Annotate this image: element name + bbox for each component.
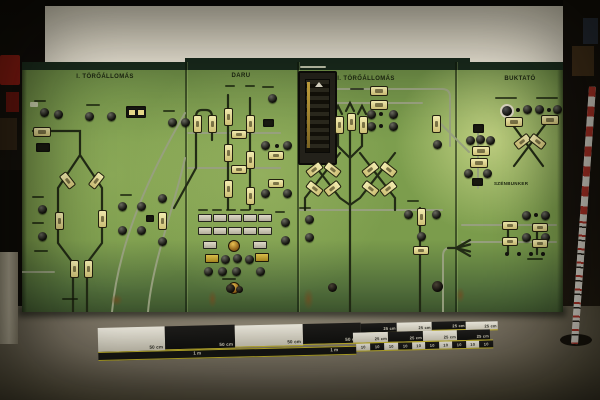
panel-title-2: DARU: [216, 73, 266, 80]
indicator-lamp: [33, 127, 51, 137]
push-button: [107, 112, 116, 121]
recorder-pointer: [315, 82, 323, 87]
label-smudge: [34, 250, 48, 252]
indicator-lamp: [84, 260, 93, 278]
dark-indicator-box: [36, 143, 50, 152]
push-button: [433, 140, 442, 149]
push-button: [476, 135, 485, 144]
signal-dot: [505, 252, 509, 256]
label-smudge: [198, 209, 208, 211]
push-button: [118, 226, 127, 235]
door-knob: [432, 281, 443, 292]
push-button: [118, 202, 127, 211]
indicator-lamp: [541, 115, 559, 125]
signal-dot: [547, 108, 551, 112]
push-button: [218, 267, 227, 276]
red-crate-small: [6, 92, 19, 112]
indicator-lamp: [417, 208, 426, 226]
indicator-window: [228, 227, 242, 235]
push-button: [367, 122, 376, 131]
shelf-item-wood: [572, 46, 594, 76]
push-button: [137, 226, 146, 235]
label-smudge: [350, 88, 364, 90]
label-smudge: [120, 194, 132, 196]
indicator-window: [243, 214, 257, 222]
indicator-window: [258, 214, 272, 222]
signal-dot: [275, 144, 279, 148]
indicator-window: [213, 227, 227, 235]
mini-lamp: [128, 109, 136, 116]
mimic-control-panel: I. TÖRŐÁLLOMÁS DARU II. TÖRŐÁLLOMÁS BUKT…: [22, 58, 563, 312]
indicator-lamp: [502, 221, 518, 230]
push-button: [522, 233, 531, 242]
rust-stain: [456, 287, 465, 303]
signal-dot: [516, 108, 520, 112]
push-button: [158, 194, 167, 203]
yellow-indicator: [205, 254, 219, 263]
signal-dot: [529, 252, 533, 256]
scale-segment: 10: [452, 340, 466, 349]
push-button: [305, 215, 314, 224]
dark-indicator-box: [146, 215, 154, 222]
indicator-window: [253, 241, 267, 249]
scale-segment: 50 cm: [98, 326, 166, 353]
label-smudge: [254, 209, 264, 211]
push-button: [281, 218, 290, 227]
label-smudge: [240, 209, 250, 211]
indicator-lamp: [208, 115, 217, 133]
indicator-lamp: [70, 260, 79, 278]
inventory-tag: [30, 102, 38, 107]
indicator-window: [198, 227, 212, 235]
indicator-lamp: [193, 115, 202, 133]
label-smudge: [275, 211, 285, 213]
indicator-lamp: [268, 151, 284, 160]
dark-indicator-box: [473, 124, 484, 133]
push-button: [38, 232, 47, 241]
indicator-lamp: [98, 210, 107, 228]
push-button: [256, 267, 265, 276]
scale-segment: 50 cm: [235, 324, 304, 348]
door-knob: [226, 284, 235, 293]
push-button: [283, 189, 292, 198]
indicator-lamp: [231, 165, 247, 174]
scale-segment: 10: [370, 342, 384, 351]
label-smudge: [495, 97, 517, 99]
push-button: [268, 94, 277, 103]
push-button: [466, 136, 475, 145]
push-button: [181, 118, 190, 127]
label-smudge: [407, 200, 419, 202]
amber-knob: [228, 240, 240, 252]
push-button: [137, 202, 146, 211]
push-button: [522, 211, 531, 220]
scale-segment: 10: [384, 342, 398, 351]
indicator-lamp: [413, 246, 429, 255]
signal-dot: [541, 252, 545, 256]
indicator-lamp: [224, 144, 233, 162]
indicator-lamp: [359, 116, 368, 134]
indicator-window: [243, 227, 257, 235]
indicator-window: [203, 241, 217, 249]
indicator-lamp: [502, 237, 518, 246]
indicator-lamp: [505, 117, 523, 127]
indicator-lamp: [224, 108, 233, 126]
indicator-lamp: [55, 212, 64, 230]
push-button: [389, 122, 398, 131]
push-button: [233, 254, 242, 263]
push-button: [245, 255, 254, 264]
indicator-lamp: [532, 223, 548, 232]
label-smudge-light: [300, 66, 326, 68]
push-button: [417, 232, 426, 241]
scale-segment: 10: [356, 342, 370, 351]
label-smudge: [86, 104, 100, 106]
brown-crate: [0, 118, 17, 150]
indicator-lamp: [246, 115, 255, 133]
rust-stain: [110, 294, 123, 306]
scale-segment: 10: [466, 340, 479, 349]
push-button: [553, 105, 562, 114]
push-button: [305, 233, 314, 242]
push-button: [283, 141, 292, 150]
indicator-lamp: [158, 212, 167, 230]
push-button: [464, 169, 473, 178]
shelf-item-blue: [583, 18, 598, 44]
label-smudge: [32, 222, 44, 224]
mini-lamp: [137, 109, 145, 116]
label-smudge: [226, 209, 236, 211]
push-button: [38, 205, 47, 214]
yellow-indicator: [255, 253, 269, 262]
label-smudge: [225, 85, 235, 87]
photo-control-panel-scene: I. TÖRŐÁLLOMÁS DARU II. TÖRŐÁLLOMÁS BUKT…: [0, 0, 600, 400]
push-button: [168, 118, 177, 127]
dark-indicator-box: [263, 119, 274, 127]
indicator-lamp: [224, 180, 233, 198]
grey-cart-left: [0, 252, 18, 344]
signal-dot: [379, 124, 383, 128]
push-button: [204, 267, 213, 276]
panel-title-1: I. TÖRŐÁLLOMÁS: [60, 74, 150, 81]
indicator-lamp: [347, 113, 356, 131]
signal-dot: [517, 252, 521, 256]
indicator-window: [213, 214, 227, 222]
door-knob: [236, 286, 243, 293]
label-smudge: [245, 85, 255, 87]
indicator-lamp: [370, 100, 388, 110]
push-button: [432, 210, 441, 219]
label-smudge: [212, 209, 222, 211]
label-smudge: [527, 258, 543, 260]
indicator-lamp: [231, 130, 247, 139]
scale-segment: 10: [425, 341, 439, 350]
push-button: [523, 105, 532, 114]
door-knob: [328, 283, 337, 292]
push-button: [281, 236, 290, 245]
indicator-lamp: [268, 179, 284, 188]
indicator-lamp: [532, 239, 548, 248]
signal-dot: [534, 213, 538, 217]
label-smudge: [163, 110, 175, 112]
push-button: [541, 211, 550, 220]
recorder-window: [305, 79, 330, 153]
indicator-lamp: [432, 115, 441, 133]
panel-title-4: BUKTATÓ: [480, 76, 560, 83]
rust-stain: [303, 288, 314, 310]
indicator-window: [228, 214, 242, 222]
push-button: [232, 267, 241, 276]
push-button: [158, 237, 167, 246]
push-button: [261, 141, 270, 150]
coal-bunker-label: SZÉNBUNKER: [494, 182, 538, 187]
indicator-window: [258, 227, 272, 235]
red-crate: [0, 55, 20, 85]
ring-knob: [500, 104, 514, 118]
push-button: [486, 136, 495, 145]
indicator-window: [198, 214, 212, 222]
push-button: [221, 255, 230, 264]
indicator-lamp: [246, 151, 255, 169]
push-button: [483, 169, 492, 178]
indicator-lamp: [370, 86, 388, 96]
scale-segment: 10: [398, 341, 412, 350]
recorder-gold-stripe: [307, 82, 310, 148]
label-smudge: [222, 278, 236, 280]
signal-dot: [379, 112, 383, 116]
indicator-lamp: [246, 187, 255, 205]
push-button: [367, 110, 376, 119]
push-button: [535, 105, 544, 114]
rust-stain: [208, 290, 217, 308]
push-button: [261, 189, 270, 198]
label-smudge: [536, 97, 558, 99]
scale-segment: 10: [439, 340, 452, 349]
scale-segment: 50 cm: [165, 325, 236, 351]
indicator-lamp: [470, 158, 488, 168]
scale-segment: 10: [412, 341, 425, 350]
indicator-lamp: [472, 146, 490, 156]
push-button: [54, 110, 63, 119]
label-smudge: [62, 298, 78, 300]
push-button: [85, 112, 94, 121]
label-smudge: [32, 196, 44, 198]
label-smudge: [262, 86, 274, 88]
chart-recorder-device: [298, 71, 337, 165]
indicator-lamp: [335, 116, 344, 134]
scale-segment: 10: [479, 339, 493, 348]
label-smudge: [299, 207, 311, 209]
push-button: [404, 210, 413, 219]
push-button: [389, 110, 398, 119]
dark-indicator-box: [472, 178, 483, 186]
push-button: [40, 108, 49, 117]
